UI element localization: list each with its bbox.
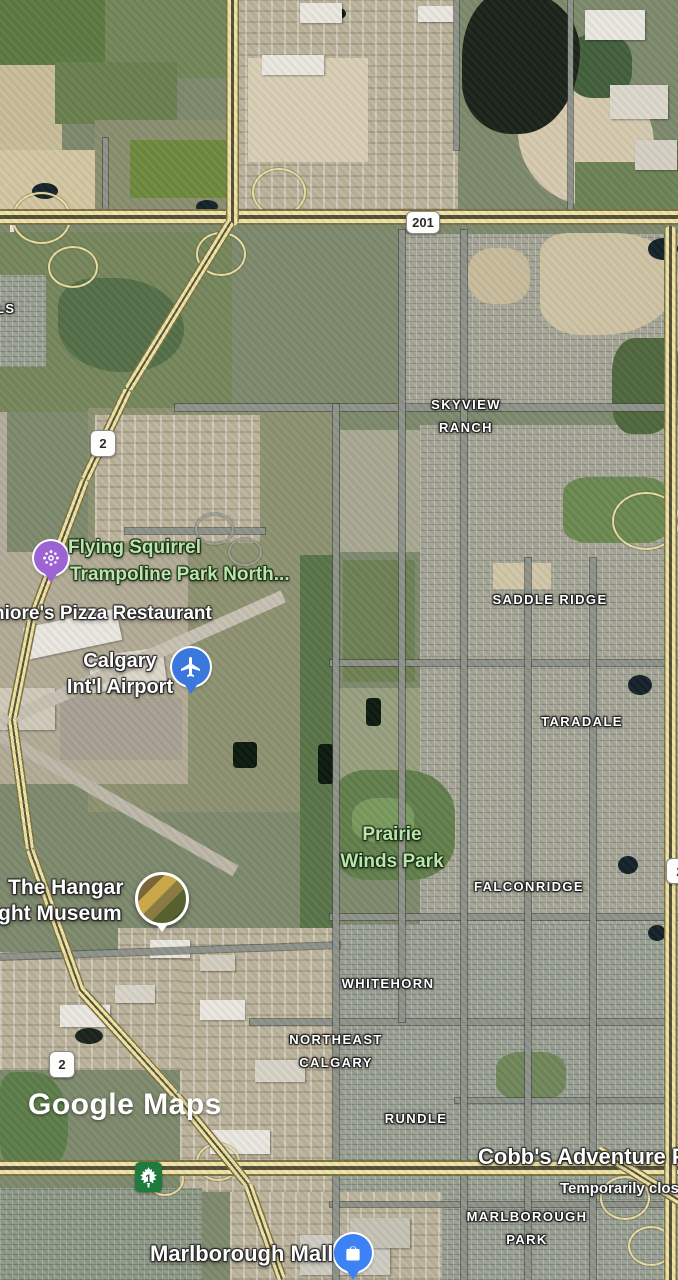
poi-label-prairie-winds-park[interactable]: Prairie Winds Park — [340, 821, 443, 875]
marlborough-line1: MARLBOROUGH — [467, 1205, 588, 1228]
arterial-road — [330, 914, 678, 920]
route-shield-201-number: 201 — [412, 215, 434, 230]
pond — [75, 1028, 103, 1044]
barlow-trail — [333, 404, 339, 1280]
construction-area — [468, 248, 530, 304]
building — [300, 3, 342, 23]
metis-trail — [399, 230, 405, 1022]
farm-field — [0, 0, 112, 70]
poi-status-temporarily-closed: Temporarily clos — [560, 1176, 678, 1202]
prairie-line1: Prairie — [340, 821, 443, 848]
building — [610, 85, 668, 119]
pond — [628, 675, 652, 695]
neighborhood-label-rundle[interactable]: RUNDLE — [385, 1107, 448, 1130]
marlborough-mall-pin[interactable] — [334, 1234, 372, 1272]
trampoline-line1: Flying Squirrel — [68, 534, 290, 561]
hangar-building — [200, 955, 235, 971]
airport-line1: Calgary — [67, 648, 173, 674]
google-maps-watermark: Google Maps — [28, 1088, 222, 1122]
interchange-ramp — [48, 246, 98, 288]
prairie-line2: Winds Park — [340, 848, 443, 875]
northeast-line2: CALGARY — [289, 1051, 383, 1074]
industrial-lot — [340, 430, 420, 552]
arterial-road — [330, 660, 678, 666]
route-shield-201: 201 — [406, 211, 440, 234]
route-shield-2-east-partial: 2 — [666, 858, 678, 884]
poi-label-calgary-airport[interactable]: Calgary Int'l Airport — [67, 648, 173, 700]
trampoline-line2: Trampoline Park North... — [70, 561, 290, 588]
airport-pond — [233, 742, 257, 768]
airport-apron — [60, 698, 182, 760]
local-road — [568, 0, 573, 210]
pond — [618, 856, 638, 874]
route-shield-2-number: 2 — [58, 1057, 65, 1072]
airport-pond — [318, 744, 334, 784]
hangar-line2: ght Museum — [0, 901, 124, 927]
poi-label-marlborough-mall[interactable]: Marlborough Mall — [150, 1241, 333, 1267]
country-hills-blvd — [175, 404, 678, 411]
neighborhood-label-whitehorn[interactable]: WHITEHORN — [342, 972, 435, 995]
neighborhood-label-saddle-ridge[interactable]: SADDLE RIDGE — [492, 588, 607, 611]
residential-area — [0, 275, 46, 367]
airport-line2: Int'l Airport — [67, 674, 173, 700]
poi-label-pizza-restaurant[interactable]: niore's Pizza Restaurant — [0, 601, 212, 627]
route-shield-2-south: 2 — [49, 1051, 75, 1078]
trampoline-park-icon — [40, 547, 62, 569]
farm-field — [0, 65, 62, 157]
neighborhood-label-partial[interactable]: LS — [0, 297, 15, 320]
neighborhood-label-marlborough-park[interactable]: MARLBOROUGH PARK — [467, 1205, 588, 1251]
warehouse — [200, 1000, 245, 1020]
building — [262, 55, 324, 75]
local-road — [103, 138, 108, 214]
route-shield-2-number: 2 — [99, 436, 106, 451]
farm-field — [55, 62, 177, 124]
northeast-line1: NORTHEAST — [289, 1028, 383, 1051]
trans-canada-shield-number: 1 — [145, 1172, 152, 1186]
trans-canada-shield: 1 — [135, 1162, 162, 1192]
airport-pond — [366, 698, 381, 726]
airport-north-industrial — [95, 415, 260, 543]
shopping-bag-icon — [343, 1243, 363, 1263]
satellite-map-canvas[interactable]: 201 2 2 2 1 LS SKYVIEW RANCH SADDLE RIDG… — [0, 0, 678, 1280]
building — [635, 140, 677, 170]
skyview-line2: RANCH — [431, 416, 501, 439]
building — [585, 10, 645, 40]
commercial-building — [115, 985, 155, 1003]
poi-label-cobbs-adventure-park[interactable]: Cobb's Adventure Pa — [478, 1144, 678, 1170]
stoney-trail-201 — [0, 209, 678, 225]
construction-area — [493, 563, 551, 589]
park-field — [496, 1052, 566, 1100]
arterial-road — [461, 230, 467, 1280]
hangar-line1: The Hangar — [8, 875, 124, 901]
skyview-line1: SKYVIEW — [431, 393, 501, 416]
neighborhood-label-skyview-ranch[interactable]: SKYVIEW RANCH — [431, 393, 501, 439]
marlborough-line2: PARK — [467, 1228, 588, 1251]
deerfoot-trail-north — [226, 0, 239, 226]
route-shield-2-north: 2 — [90, 430, 116, 457]
golf-course — [0, 1072, 68, 1172]
neighborhood-label-northeast-calgary[interactable]: NORTHEAST CALGARY — [289, 1028, 383, 1074]
poi-label-hangar-museum[interactable]: The Hangar ght Museum — [8, 875, 124, 927]
trampoline-park-pin[interactable] — [34, 541, 68, 575]
building — [418, 6, 456, 22]
hangar-museum-photo-pin[interactable] — [135, 872, 189, 926]
neighborhood-label-falconridge[interactable]: FALCONRIDGE — [474, 875, 584, 898]
poi-label-trampoline-park[interactable]: Flying Squirrel Trampoline Park North... — [68, 534, 290, 588]
stoney-trail-east — [664, 226, 677, 1280]
airport-pin[interactable] — [172, 648, 210, 686]
local-road — [454, 0, 459, 150]
airplane-icon — [179, 655, 203, 679]
arterial-road — [455, 1098, 678, 1103]
neighborhood-label-taradale[interactable]: TARADALE — [541, 710, 623, 733]
